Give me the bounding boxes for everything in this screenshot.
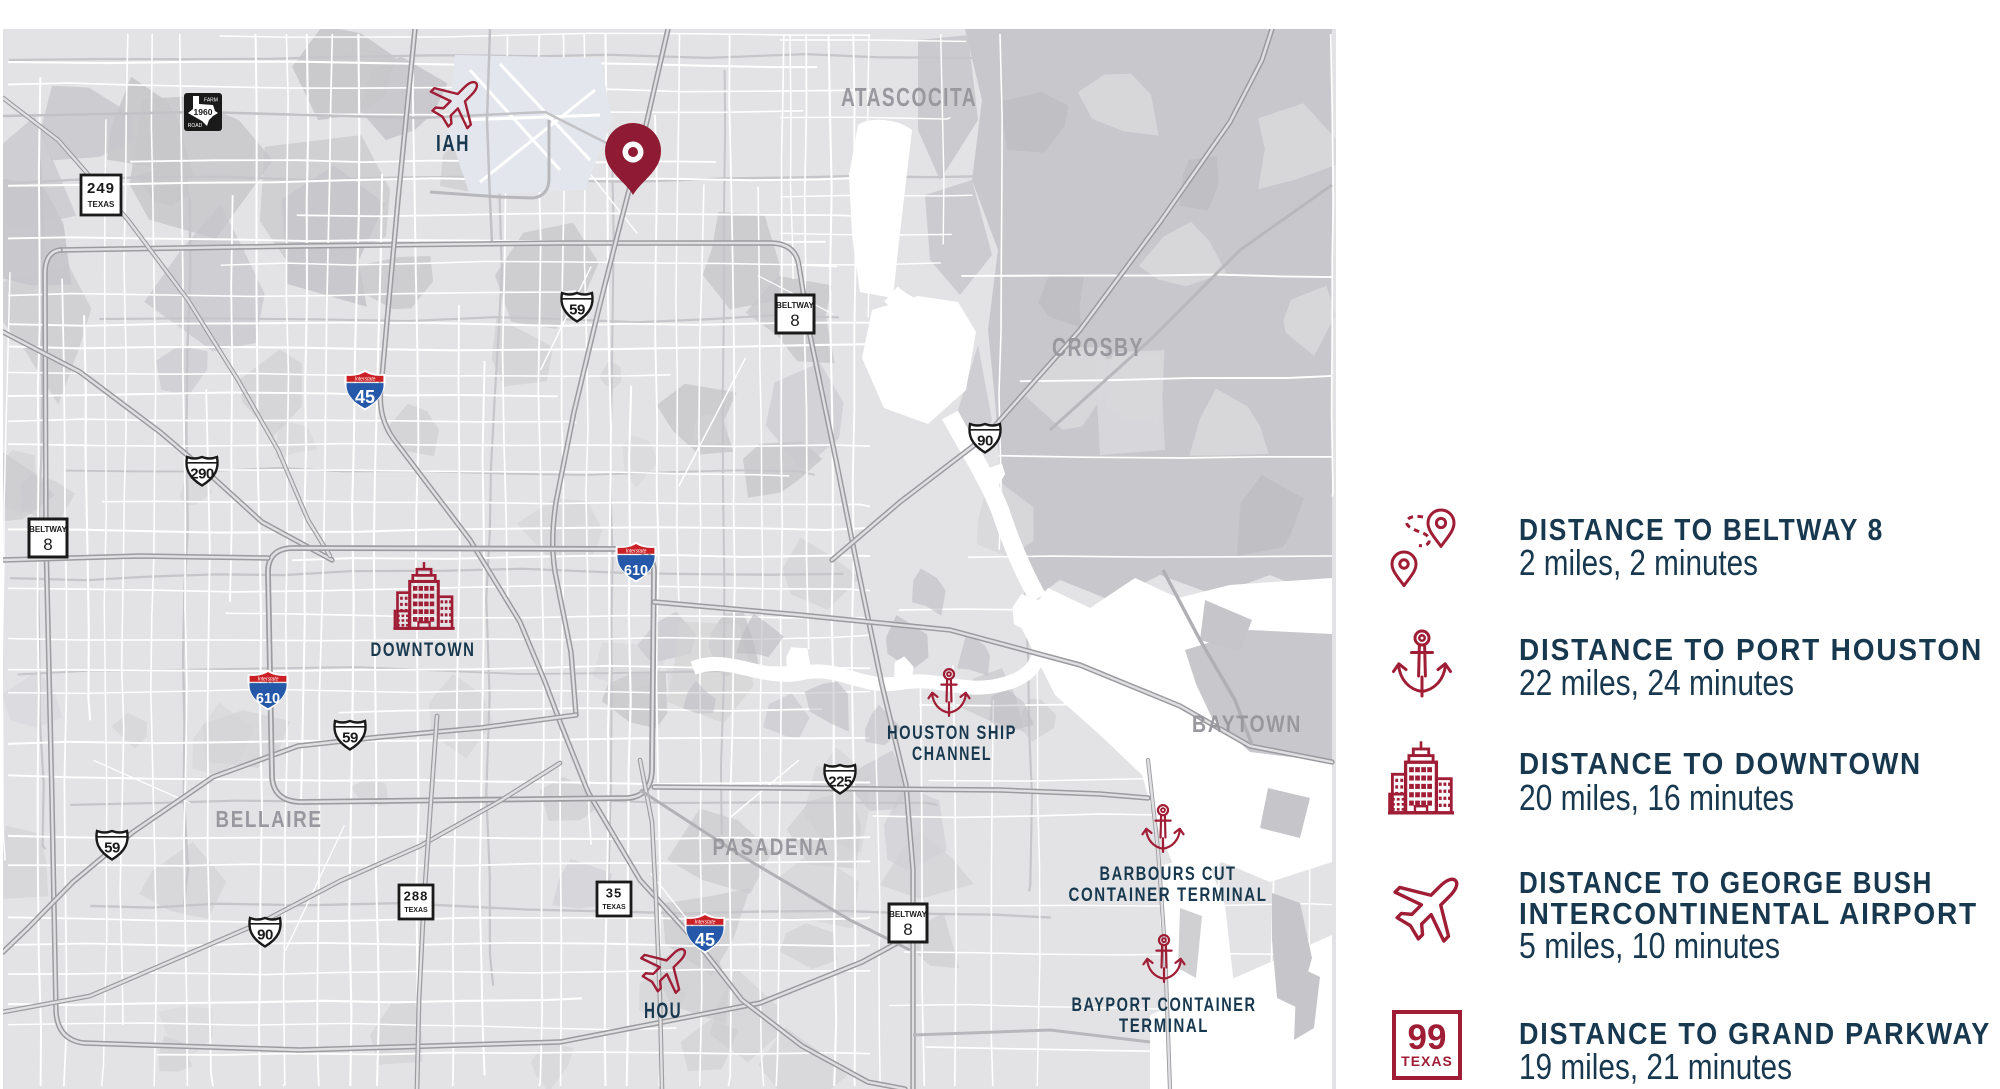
- svg-text:IAH: IAH: [436, 130, 470, 156]
- svg-text:BELTWAY: BELTWAY: [29, 525, 67, 534]
- svg-text:249: 249: [87, 180, 115, 197]
- svg-text:ROAD: ROAD: [188, 123, 203, 129]
- svg-text:2 miles, 2 minutes: 2 miles, 2 minutes: [1519, 542, 1758, 583]
- svg-text:PASADENA: PASADENA: [713, 834, 830, 861]
- svg-text:CONTAINER TERMINAL: CONTAINER TERMINAL: [1069, 885, 1268, 906]
- svg-text:5 miles, 10 minutes: 5 miles, 10 minutes: [1519, 925, 1780, 966]
- svg-text:22 miles, 24 minutes: 22 miles, 24 minutes: [1519, 662, 1794, 703]
- svg-text:BAYPORT CONTAINER: BAYPORT CONTAINER: [1072, 995, 1257, 1016]
- svg-text:59: 59: [104, 840, 120, 857]
- svg-text:Interstate: Interstate: [626, 548, 647, 554]
- svg-text:TEXAS: TEXAS: [404, 907, 428, 914]
- svg-text:8: 8: [790, 311, 799, 330]
- svg-text:BAYTOWN: BAYTOWN: [1192, 711, 1302, 738]
- svg-text:ATASCOCITA: ATASCOCITA: [841, 82, 977, 112]
- svg-text:225: 225: [828, 774, 852, 791]
- svg-text:288: 288: [404, 888, 429, 903]
- svg-text:HOU: HOU: [644, 998, 682, 1023]
- svg-text:BELTWAY: BELTWAY: [776, 301, 814, 310]
- svg-text:HOUSTON SHIP: HOUSTON SHIP: [887, 723, 1017, 744]
- svg-text:90: 90: [257, 927, 273, 944]
- svg-text:1960: 1960: [194, 107, 213, 117]
- svg-text:TEXAS: TEXAS: [1401, 1053, 1453, 1069]
- svg-text:59: 59: [569, 302, 585, 319]
- svg-text:DOWNTOWN: DOWNTOWN: [371, 639, 476, 661]
- svg-text:610: 610: [624, 563, 648, 579]
- svg-text:BELTWAY: BELTWAY: [889, 910, 927, 919]
- svg-text:BELLAIRE: BELLAIRE: [216, 806, 323, 832]
- svg-text:TEXAS: TEXAS: [88, 200, 115, 209]
- svg-text:20 miles, 16 minutes: 20 miles, 16 minutes: [1519, 777, 1794, 818]
- svg-text:BARBOURS CUT: BARBOURS CUT: [1100, 864, 1237, 885]
- svg-text:CROSBY: CROSBY: [1052, 332, 1144, 362]
- svg-text:Interstate: Interstate: [355, 376, 376, 382]
- svg-text:TEXAS: TEXAS: [602, 904, 626, 911]
- svg-text:TERMINAL: TERMINAL: [1119, 1016, 1209, 1037]
- svg-text:610: 610: [256, 691, 280, 707]
- svg-text:Interstate: Interstate: [695, 919, 716, 925]
- svg-text:FARM: FARM: [204, 98, 218, 104]
- svg-text:59: 59: [342, 730, 358, 747]
- svg-text:45: 45: [695, 930, 715, 950]
- svg-text:CHANNEL: CHANNEL: [912, 744, 992, 765]
- svg-text:99: 99: [1408, 1018, 1447, 1057]
- svg-text:Interstate: Interstate: [258, 676, 279, 682]
- svg-text:DISTANCE TO DOWNTOWN: DISTANCE TO DOWNTOWN: [1519, 746, 1922, 781]
- svg-text:35: 35: [606, 885, 622, 900]
- svg-text:45: 45: [355, 387, 375, 407]
- svg-text:8: 8: [903, 920, 912, 939]
- svg-text:90: 90: [977, 433, 993, 450]
- svg-text:19 miles, 21 minutes: 19 miles, 21 minutes: [1519, 1046, 1792, 1087]
- svg-text:DISTANCE TO GEORGE BUSH: DISTANCE TO GEORGE BUSH: [1519, 865, 1933, 900]
- svg-text:290: 290: [190, 466, 214, 483]
- svg-text:8: 8: [43, 535, 52, 554]
